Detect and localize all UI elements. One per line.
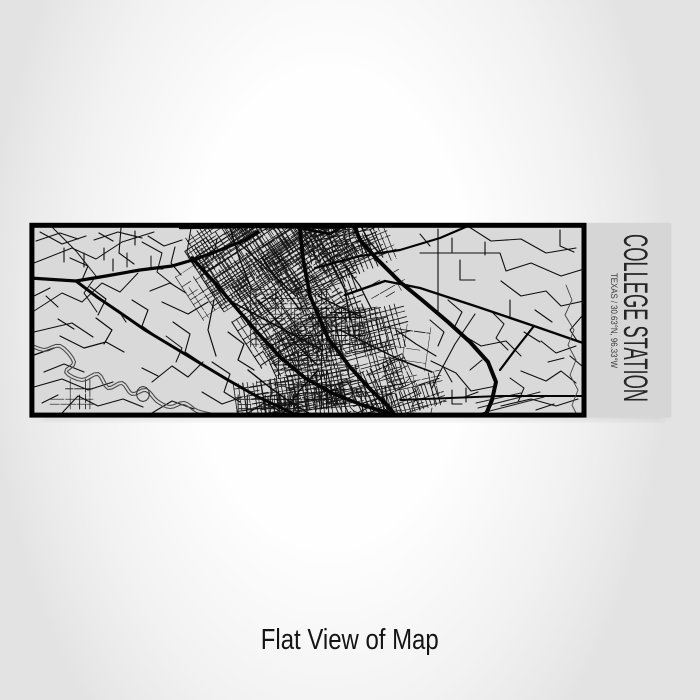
svg-text:TEXAS / 30.63°N, 96.33°W: TEXAS / 30.63°N, 96.33°W bbox=[609, 273, 619, 368]
svg-text:COLLEGE STATION: COLLEGE STATION bbox=[616, 234, 654, 402]
